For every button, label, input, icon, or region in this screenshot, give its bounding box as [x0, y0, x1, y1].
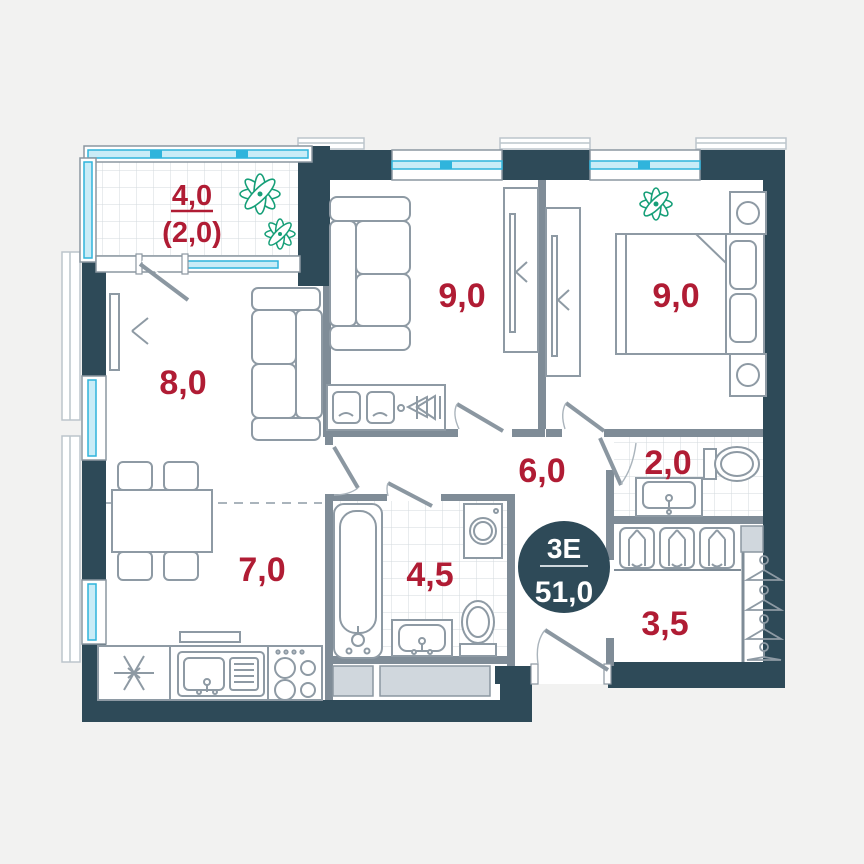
- window-left-kitchen: [82, 580, 106, 644]
- balcony-reduced-area-label: (2,0): [162, 217, 222, 249]
- bath-sink-icon: [392, 620, 452, 656]
- sweater-icon: [620, 528, 654, 568]
- wc-toilet-icon: [704, 447, 759, 481]
- wardrobe-living-icon: [504, 188, 538, 352]
- sweater-icon: [700, 528, 734, 568]
- plant-icon: [265, 219, 295, 249]
- sofa-small-icon: [252, 288, 322, 440]
- living-area-label: 9,0: [438, 277, 485, 315]
- toilet-icon: [460, 601, 496, 656]
- plant-icon: [240, 174, 280, 214]
- tv-console-icon: [327, 385, 445, 430]
- floor-plan-svg: 4,0 (2,0) 8,0 9,0 9,0 6,0 2,0 7,0 4,5 3,…: [0, 0, 864, 864]
- sweater-icon: [660, 528, 694, 568]
- washing-machine-icon: [464, 504, 502, 558]
- wardrobe-area-label: 3,5: [641, 605, 688, 643]
- plant-icon: [640, 188, 672, 220]
- hall-area-label: 6,0: [518, 452, 565, 490]
- wardrobe-bedroom-icon: [546, 208, 580, 376]
- balcony-area-label: 4,0: [172, 180, 212, 212]
- bedroom-area-label: 9,0: [652, 277, 699, 315]
- window-top-bedroom: [590, 150, 700, 180]
- nightstand-icon: [730, 192, 766, 234]
- wc-sink-icon: [636, 478, 702, 516]
- balcony-door-window: [96, 254, 300, 274]
- badge-area-label: 51,0: [535, 576, 593, 609]
- window-top-living: [392, 150, 502, 180]
- bathtub-icon: [334, 504, 382, 658]
- kitchen-sink-icon: [178, 652, 264, 696]
- window-left-room: [82, 376, 106, 460]
- nightstand-icon: [730, 354, 766, 396]
- room-area-label: 8,0: [159, 364, 206, 402]
- kitchen-area-label: 7,0: [238, 551, 285, 589]
- sofa-icon: [330, 197, 410, 350]
- floor-plan-page: 4,0 (2,0) 8,0 9,0 9,0 6,0 2,0 7,0 4,5 3,…: [0, 0, 864, 864]
- wc-area-label: 2,0: [644, 444, 691, 482]
- badge-type-label: 3Е: [547, 533, 581, 564]
- bathroom-area-label: 4,5: [406, 556, 453, 594]
- apartment-badge: 3Е 51,0: [518, 521, 610, 613]
